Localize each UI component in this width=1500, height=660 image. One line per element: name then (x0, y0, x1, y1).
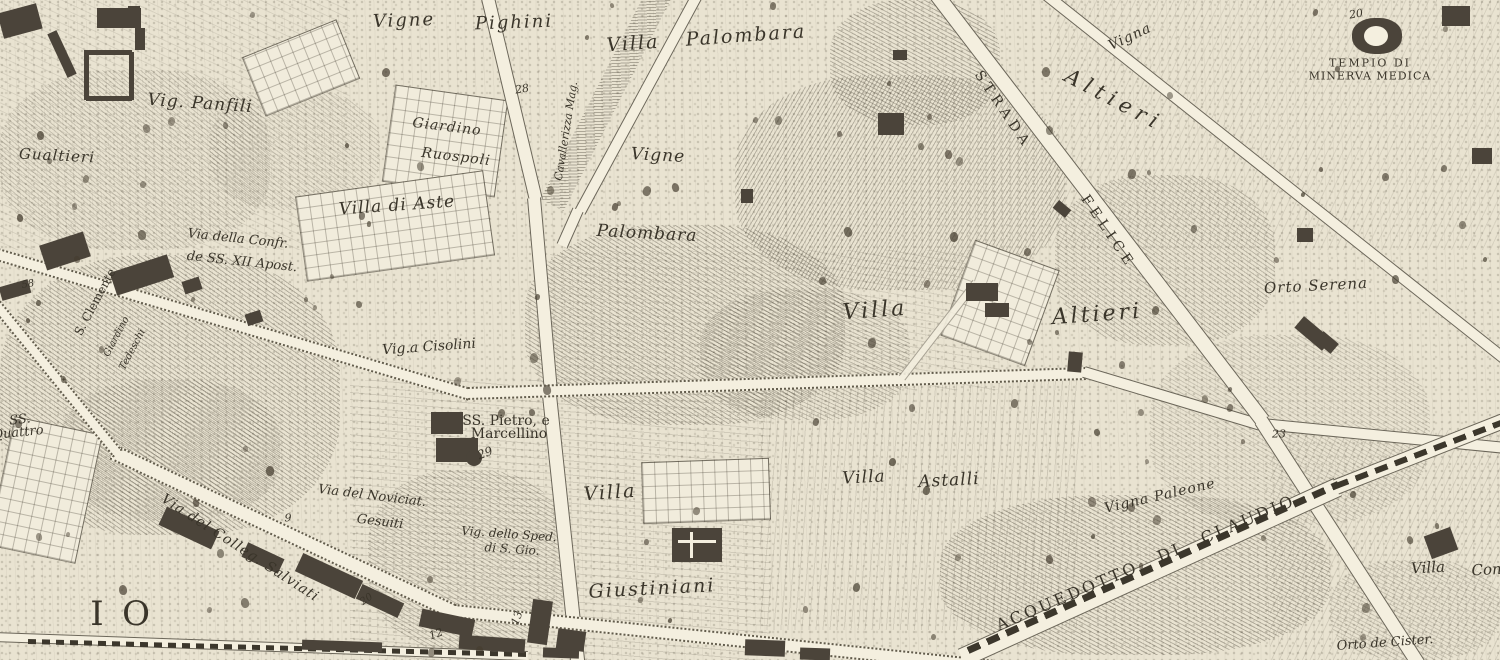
tree-mark (867, 337, 876, 348)
tree-mark (836, 131, 841, 137)
building-block (966, 283, 998, 301)
tree-mark (1443, 25, 1448, 31)
tree-mark (72, 203, 78, 210)
map-label-vigne-pighini-2: Pighini (475, 13, 554, 34)
building-block (741, 189, 753, 203)
garden-parterre (641, 458, 771, 524)
map-label-vigne-center: Vigne (630, 146, 685, 166)
map-label-num-20-tempio: 20 (1348, 7, 1364, 20)
tree-mark (770, 2, 777, 10)
map-label-villa-center: Villa (583, 482, 637, 505)
map-label-district-letter-i: I (90, 597, 103, 631)
building-block (985, 303, 1009, 317)
building-block (1297, 228, 1313, 242)
building-block (556, 628, 587, 652)
map-label-num-28: 28 (514, 82, 530, 95)
tree-mark (36, 300, 41, 307)
building-block (84, 50, 89, 100)
map-label-district-letter-o: O (122, 597, 150, 631)
map-label-vigne-pighini-1: Vigne (373, 11, 436, 31)
building-block (745, 639, 786, 656)
engraved-rome-map: Vig. PanfiliGualtieriVignePighiniGiardin… (0, 0, 1500, 660)
tree-mark (1459, 220, 1466, 229)
tree-mark (16, 214, 23, 222)
tree-mark (931, 633, 937, 640)
map-label-villa-astalli-2: Astalli (918, 471, 980, 491)
building-block (129, 52, 134, 100)
building-block (135, 28, 145, 50)
tree-mark (265, 465, 273, 475)
temple-court (1364, 26, 1388, 46)
vineyard-rows (550, 250, 1000, 390)
building-block (84, 50, 132, 55)
tree-mark (542, 385, 551, 396)
map-label-villa-con-2: Con. (1471, 562, 1500, 579)
building-block (800, 647, 830, 660)
building-block (1472, 148, 1492, 164)
map-label-ss-pietro-2: Marcellino (471, 427, 547, 441)
tree-mark (139, 180, 146, 188)
map-label-tempio-line2: MINERVA MEDICA (1309, 71, 1432, 82)
tree-mark (774, 116, 782, 126)
hill-hatching (830, 0, 1000, 125)
tree-mark (547, 186, 554, 195)
map-label-villa-altieri-1: Villa (842, 298, 908, 324)
map-label-num-9: 9 (285, 513, 292, 524)
map-label-tempio-line1: TEMPIO DI (1329, 58, 1411, 69)
building-block (431, 412, 463, 434)
map-label-villa-astalli-1: Villa (842, 468, 886, 487)
building-block (878, 113, 904, 135)
tree-mark (644, 539, 649, 545)
tree-mark (1382, 173, 1389, 181)
giustiniani-court-2 (690, 532, 693, 558)
map-label-num-23: 23 (1272, 429, 1286, 440)
vineyard-rows (760, 380, 1080, 630)
tree-mark (530, 353, 538, 363)
tree-mark (1023, 247, 1031, 256)
tree-mark (908, 404, 914, 412)
map-label-villa-con-1: Villa (1411, 560, 1446, 577)
map-label-villa-palombara-1: Villa (606, 33, 660, 56)
building-block (1067, 351, 1083, 372)
tree-mark (250, 12, 256, 19)
map-label-gualtieri: Gualtieri (19, 147, 96, 166)
building-block (86, 96, 132, 101)
map-label-vig-spedale-2: di S. Gio. (484, 541, 540, 557)
building-block (128, 6, 140, 22)
tree-mark (137, 230, 146, 241)
tree-mark (945, 150, 953, 159)
building-block (1442, 6, 1470, 26)
tree-mark (1166, 91, 1173, 99)
tree-mark (1119, 361, 1125, 369)
tree-mark (35, 533, 42, 542)
tree-mark (1041, 67, 1049, 77)
building-block (672, 528, 722, 562)
building-block (893, 50, 907, 60)
giustiniani-court-1 (678, 540, 716, 543)
